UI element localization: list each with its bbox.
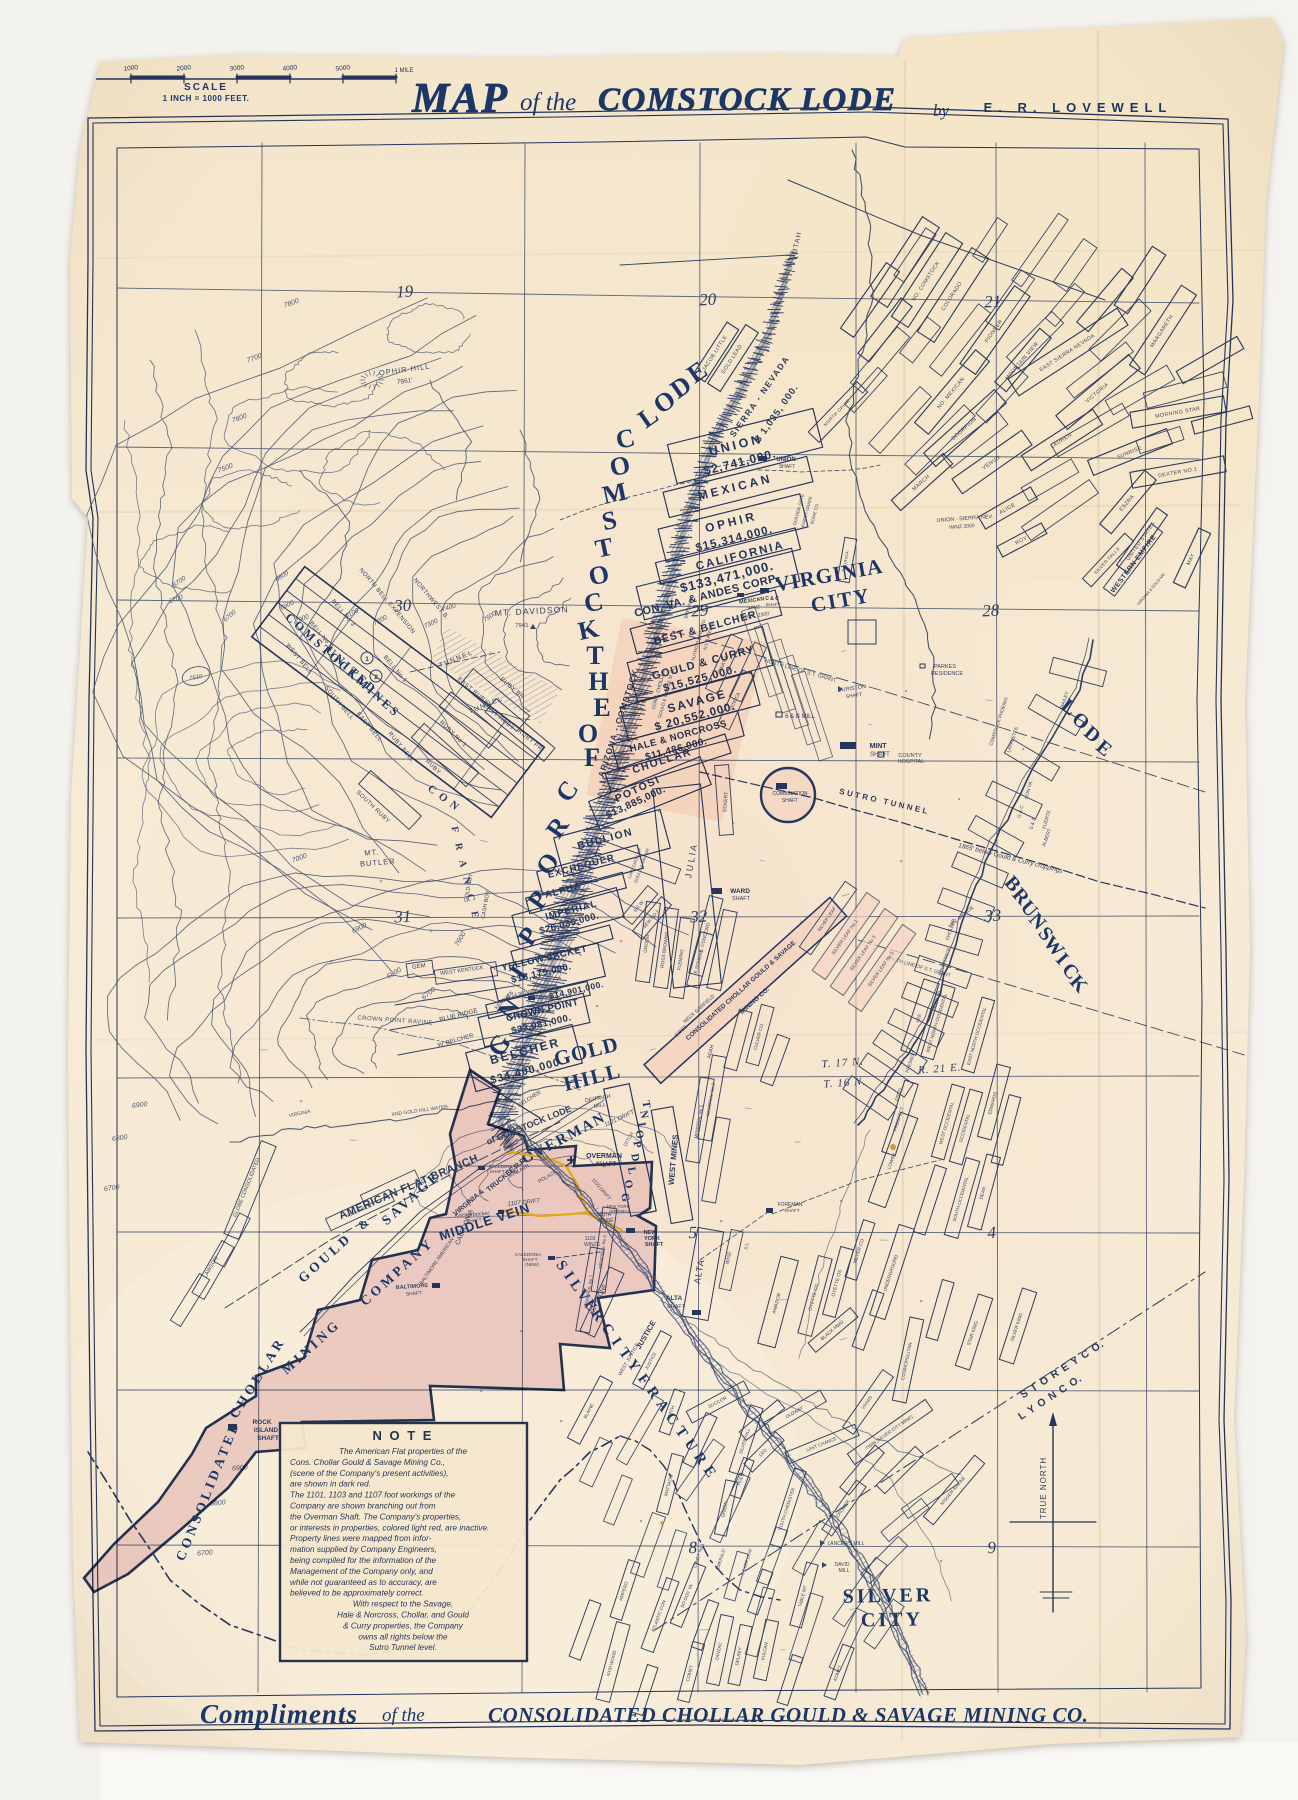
svg-text:Compliments: Compliments (200, 1699, 358, 1729)
svg-text:SHAFT: SHAFT (732, 896, 751, 902)
svg-text:SCALE: SCALE (184, 82, 228, 93)
svg-text:32: 32 (689, 907, 708, 927)
svg-text:9: 9 (987, 1538, 997, 1557)
svg-text:PARKES: PARKES (934, 664, 956, 670)
svg-text:SHAFT: SHAFT (784, 1208, 799, 1213)
svg-text:With respect to the Savage,: With respect to the Savage, (353, 1600, 454, 1609)
svg-text:2: 2 (374, 674, 378, 681)
svg-text:The 1101, 1103 and 1107 foot w: The 1101, 1103 and 1107 foot workings of… (290, 1491, 456, 1500)
svg-text:WARD: WARD (730, 888, 750, 895)
svg-text:Sutro Tunnel level.: Sutro Tunnel level. (369, 1643, 437, 1652)
svg-text:being compiled for the informa: being compiled for the information of th… (290, 1556, 437, 1565)
svg-text:MILL: MILL (838, 1568, 849, 1574)
svg-text:while not guaranteed as to acc: while not guaranteed as to accuracy, are (290, 1578, 437, 1587)
svg-text:The American Flat properties o: The American Flat properties of the (339, 1447, 467, 1456)
svg-text:MINT: MINT (869, 743, 887, 750)
svg-text:Cons. Chollar Gould & Savage M: Cons. Chollar Gould & Savage Mining Co., (290, 1458, 445, 1467)
svg-text:SHAFT: SHAFT (406, 1290, 423, 1297)
svg-text:Property lines were mapped fro: Property lines were mapped from infor- (290, 1534, 432, 1543)
svg-text:19: 19 (396, 282, 414, 302)
svg-text:1: 1 (365, 656, 369, 663)
svg-text:the Overman Shaft. The Compan: the Overman Shaft. The Company's propert… (290, 1512, 461, 1521)
svg-text:OVERMAN: OVERMAN (586, 1153, 622, 1160)
svg-text:33: 33 (983, 906, 1002, 926)
svg-text:TRUE NORTH: TRUE NORTH (1039, 1457, 1048, 1519)
svg-text:MT.: MT. (364, 847, 380, 857)
svg-text:SHAFT: SHAFT (779, 464, 795, 470)
svg-text:by: by (933, 101, 950, 120)
svg-text:N O T E: N O T E (373, 1428, 434, 1443)
svg-text:ROCK: ROCK (252, 1419, 271, 1426)
svg-text:UNION: UNION (776, 457, 795, 463)
svg-text:WINDMILL: WINDMILL (610, 1209, 631, 1214)
svg-text:H: H (588, 667, 608, 696)
svg-text:Hale & Norcross, Chollar, and: Hale & Norcross, Chollar, and Gould (337, 1611, 469, 1620)
svg-text:are shown in dark red.: are shown in dark red. (290, 1480, 371, 1489)
svg-text:SHAFT: SHAFT (645, 1242, 664, 1248)
svg-text:SHAFT: SHAFT (782, 798, 798, 804)
svg-text:SHAFT: SHAFT (257, 1435, 279, 1442)
svg-text:1 INCH = 1000 FEET.: 1 INCH = 1000 FEET. (163, 94, 250, 103)
svg-text:believed to be approximately c: believed to be approximately correct. (290, 1589, 424, 1598)
svg-text:LANCER'S MILL: LANCER'S MILL (827, 1541, 864, 1547)
svg-text:(scene of the Company's presen: (scene of the Company's present activiti… (290, 1469, 449, 1478)
svg-text:T: T (586, 641, 603, 670)
svg-text:HOSPITAL: HOSPITAL (898, 759, 925, 765)
svg-text:CONSOLIDATED CHOLLAR GOULD &: CONSOLIDATED CHOLLAR GOULD & SAVAGE MINI… (488, 1703, 1088, 1727)
svg-text:28: 28 (982, 601, 1000, 621)
svg-text:4: 4 (987, 1223, 997, 1242)
svg-text:mation supplied by Company Eng: mation supplied by Company Engineers, (290, 1545, 437, 1554)
svg-text:Management of the Company only: Management of the Company only, and (290, 1567, 433, 1576)
svg-text:SHAFT: SHAFT (765, 602, 780, 607)
svg-text:(NEW): (NEW) (525, 1262, 539, 1267)
svg-text:MAP: MAP (411, 76, 509, 122)
svg-text:Company are shown branching ou: Company are shown branching out from (290, 1502, 436, 1511)
svg-text:7941: 7941 (515, 623, 529, 630)
svg-text:6700: 6700 (197, 1549, 213, 1557)
svg-text:SHAFT: SHAFT (545, 1000, 560, 1005)
svg-text:20: 20 (699, 290, 717, 310)
svg-text:owns all rights below the: owns all rights below the (358, 1632, 448, 1641)
svg-text:COMBINATION: COMBINATION (773, 791, 808, 797)
svg-text:E. R. LOVEWELL: E. R. LOVEWELL (984, 100, 1173, 115)
svg-text:RESIDENCE: RESIDENCE (931, 671, 963, 677)
svg-text:ISLAND: ISLAND (254, 1427, 279, 1434)
svg-text:SHAFT: SHAFT (596, 1162, 616, 1168)
svg-text:6 & B MILL: 6 & B MILL (785, 714, 815, 720)
svg-text:of the: of the (382, 1705, 425, 1726)
svg-text:or interests in properties, co: or interests in properties, colored ligh… (290, 1523, 489, 1532)
svg-text:& Curry properties, the Compan: & Curry properties, the Company (343, 1621, 464, 1630)
svg-text:1 MILE: 1 MILE (394, 68, 413, 74)
